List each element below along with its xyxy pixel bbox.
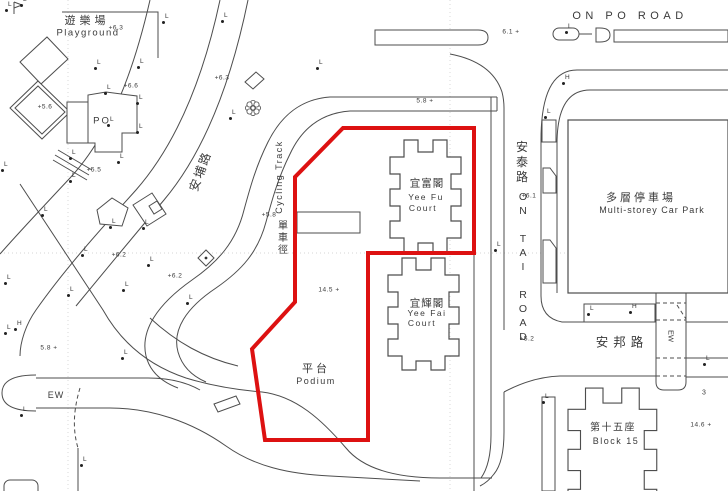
spot-elevation: +6.2 [112,252,127,259]
label-yee-fu-court-en2: Court [409,203,437,213]
label-yee-fai-court-en2: Court [408,318,436,328]
label-cycling-track-zh: 單車徑 [274,220,289,256]
spot-elevation: +6.1 [522,193,537,200]
label-yee-fu-court-en1: Yee Fu [408,192,444,202]
label-car-park-en: Multi-storey Car Park [599,205,705,215]
spot-elevation: +6.2 [168,273,183,280]
label-on-pong-road-zh: 安邦路 [596,332,649,351]
spot-elevation: +5.2 [520,336,535,343]
spot-elevation: +6.3 [109,25,124,32]
label-ew-east: EW [667,330,676,342]
spot-elevation: 6.1 + [502,29,519,36]
label-layer: ON PO ROADON TAI ROAD安泰路安埔路安邦路單車徑Cycling… [0,0,728,491]
label-ew-west: EW [48,390,65,400]
label-on-po-road: ON PO ROAD [572,10,687,22]
label-on-tai-road: ON TAI ROAD [517,191,529,345]
label-podium-zh: 平台 [302,360,330,376]
label-yee-fai-court-en1: Yee Fai [407,308,446,318]
spot-elevation: 5.8 + [416,98,433,105]
label-on-po-road-zh: 安埔路 [185,148,215,193]
label-car-park-zh: 多層停車場 [606,189,676,205]
label-block-15-en: Block 15 [593,436,640,446]
spot-elevation: +6.3 [215,75,230,82]
site-plan-map: ON PO ROADON TAI ROAD安泰路安埔路安邦路單車徑Cycling… [0,0,728,491]
label-yee-fu-court-zh: 宜富閣 [410,176,445,191]
label-block-15-zh: 第十五座 [590,419,636,434]
spot-elevation: +5.6 [38,104,53,111]
spot-elevation: +5.5 [87,167,102,174]
spot-elevation: 14.6 + [690,422,711,429]
label-cycling-track-en: Cycling Track [274,140,284,214]
spot-elevation: 5.8 + [40,345,57,352]
label-podium-en: Podium [296,376,336,386]
spot-elevation: 14.5 + [318,287,339,294]
label-playground-zh: 遊樂場 [65,12,110,28]
spot-elevation: +6.6 [124,83,139,90]
spot-elevation: +5.8 [262,212,277,219]
label-on-tai-road-zh: 安泰路 [514,141,531,186]
label-lot-number-3: 3 [702,390,706,397]
